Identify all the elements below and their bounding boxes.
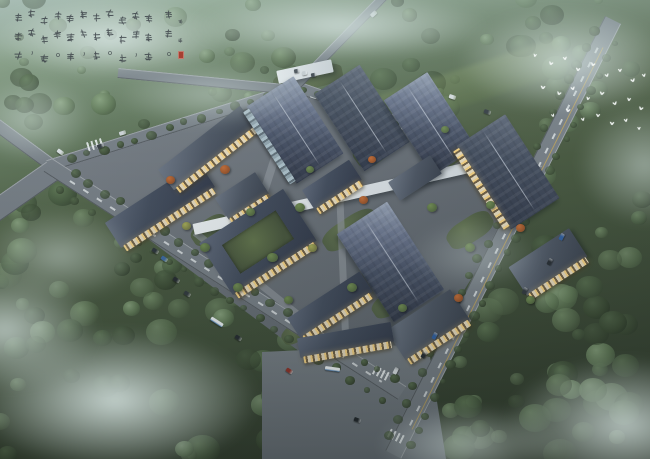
street-tree — [552, 153, 560, 160]
bird-icon: v — [562, 55, 567, 61]
calligraphy-character — [40, 31, 49, 49]
courtyard-tree — [427, 203, 437, 212]
calligraphy-character — [40, 50, 49, 68]
calligraphy-column — [40, 12, 49, 68]
forest-tree — [594, 0, 604, 4]
street-tree — [440, 379, 446, 385]
bird-icon: v — [575, 66, 580, 72]
bird-icon: v — [623, 117, 628, 123]
bird-icon: v — [599, 90, 605, 97]
street-tree — [485, 281, 495, 290]
street-tree — [146, 131, 156, 140]
street-tree — [166, 124, 174, 132]
forest-tree — [443, 434, 475, 459]
street-tree — [570, 122, 577, 128]
forest-tree — [24, 114, 43, 130]
street-tree — [71, 169, 81, 178]
calligraphy-character — [164, 25, 173, 43]
forest-tree — [586, 343, 614, 367]
street-tree — [402, 399, 412, 408]
calligraphy-character — [118, 50, 127, 68]
street-tree — [484, 240, 493, 248]
calligraphy-character — [144, 48, 153, 66]
calligraphy-column — [144, 10, 153, 66]
forest-tree — [546, 374, 572, 396]
forest-tree — [57, 319, 83, 341]
forest-tree — [552, 308, 579, 331]
bird-icon: v — [641, 72, 646, 78]
forest-tree — [542, 398, 571, 422]
calligraphy-character — [40, 12, 49, 30]
courtyard-tree — [486, 201, 495, 209]
courtyard-tree — [398, 304, 407, 312]
forest-tree — [63, 369, 79, 383]
bird-icon: v — [612, 100, 618, 107]
courtyard-tree — [182, 222, 191, 230]
street-tree — [265, 299, 275, 308]
calligraphy-character — [14, 9, 23, 27]
street-tree — [216, 109, 222, 115]
aerial-rendering: vvvvvvvvvvvvvvvvvvvvvvvv — [0, 0, 650, 459]
forest-tree — [471, 420, 490, 436]
street-tree — [415, 427, 422, 434]
forest-tree — [0, 446, 17, 459]
forest-tree — [149, 389, 180, 416]
forest-tree — [4, 337, 29, 358]
forest-tree — [598, 250, 622, 270]
street-tree — [226, 297, 234, 304]
calligraphy-character — [92, 47, 101, 65]
street-tree — [602, 54, 611, 62]
calligraphy-character — [131, 7, 140, 25]
accent-tree — [166, 176, 175, 184]
forest-tree — [225, 29, 239, 41]
street-tree — [586, 86, 596, 95]
calligraphy-character — [66, 29, 75, 47]
car — [56, 148, 64, 155]
bird-icon: v — [585, 95, 590, 101]
calligraphy-character — [81, 44, 87, 62]
forest-tree — [91, 93, 117, 115]
calligraphy-column — [164, 6, 173, 62]
street-tree — [564, 74, 574, 83]
street-tree — [582, 43, 591, 52]
forest-tree — [19, 74, 39, 91]
forest-tree — [15, 97, 34, 113]
forest-tree — [271, 47, 296, 68]
calligraphy-column — [79, 6, 88, 62]
street-tree — [197, 114, 206, 123]
forest-tree — [612, 354, 639, 377]
street-tree — [445, 360, 455, 369]
calligraphy-character — [144, 10, 153, 28]
courtyard-tree — [233, 283, 243, 292]
calligraphy-column — [92, 9, 101, 65]
street-tree — [511, 234, 521, 243]
calligraphy-column — [118, 12, 127, 68]
calligraphy-character — [118, 31, 127, 49]
courtyard-tree — [267, 253, 278, 263]
forest-tree — [632, 191, 650, 208]
street-tree — [210, 287, 220, 296]
street-tree — [361, 359, 368, 365]
courtyard-tree — [308, 244, 317, 252]
courtyard-tree — [465, 243, 475, 252]
forest-tree — [572, 329, 585, 340]
calligraphy-character — [53, 7, 62, 25]
calligraphy-character — [144, 29, 153, 47]
street-tree — [545, 166, 555, 175]
car — [234, 335, 242, 342]
street-tree — [117, 141, 125, 148]
forest-tree — [508, 395, 524, 409]
forest-tree — [572, 422, 596, 442]
forest-tree — [53, 97, 75, 115]
forest-tree — [454, 395, 482, 418]
calligraphy-character — [79, 6, 88, 24]
street-tree — [180, 118, 187, 124]
forest-tree — [510, 373, 524, 385]
calligraphy-column — [66, 10, 75, 66]
forest-tree — [230, 52, 255, 73]
bird-icon: v — [618, 68, 622, 74]
calligraphy-column — [105, 5, 114, 61]
courtyard-tree — [295, 203, 305, 212]
forest-tree — [595, 227, 609, 238]
calligraphy-character — [166, 44, 172, 62]
bird-icon: v — [570, 85, 576, 92]
forest-tree — [123, 301, 140, 316]
street-tree — [495, 265, 502, 272]
calligraphy-character — [131, 26, 140, 44]
calligraphy-character — [66, 10, 75, 28]
bird-icon: v — [609, 120, 614, 126]
forest-tree — [487, 288, 518, 315]
bird-icon: v — [626, 96, 631, 102]
car — [483, 109, 491, 115]
forest-tree — [110, 374, 130, 391]
street-tree — [463, 332, 470, 338]
street-tree — [589, 26, 600, 36]
forest-tree — [622, 61, 641, 77]
forest-tree — [402, 58, 419, 73]
street-tree — [56, 186, 64, 194]
forest-tree — [260, 66, 270, 74]
forest-tree — [49, 281, 69, 298]
calligraphy-character — [164, 6, 173, 24]
car — [183, 291, 191, 298]
street-tree — [83, 179, 93, 188]
calligraphy-character — [27, 24, 36, 42]
calligraphy-column — [131, 7, 140, 63]
accent-tree — [454, 294, 463, 302]
street-tree — [191, 249, 199, 256]
street-tree — [430, 393, 440, 402]
street-tree — [174, 238, 183, 246]
forest-tree — [421, 28, 440, 44]
street-tree — [345, 376, 355, 385]
forest-tree — [599, 311, 626, 334]
forest-tree — [609, 430, 625, 443]
street-tree — [88, 209, 96, 216]
street-tree — [181, 267, 187, 273]
street-tree — [194, 277, 205, 287]
bird-icon: v — [638, 105, 644, 112]
bird-icon: v — [540, 84, 546, 90]
street-tree — [454, 346, 461, 352]
signature-character — [178, 11, 183, 29]
bird-icon: v — [604, 72, 610, 79]
calligraphy-signature-column — [177, 11, 184, 59]
forest-tree — [114, 262, 130, 276]
forest-tree — [146, 319, 176, 345]
forest-tree — [391, 0, 404, 7]
forest-tree — [26, 336, 46, 353]
street-tree — [406, 441, 416, 450]
accent-tree — [220, 165, 230, 174]
forest-tree — [93, 330, 112, 346]
forest-tree — [515, 0, 537, 8]
forest-tree — [543, 439, 577, 459]
calligraphy-character — [92, 9, 101, 27]
calligraphy-column — [27, 5, 36, 61]
street-tree — [421, 413, 429, 420]
courtyard-tree — [284, 296, 293, 304]
courtyard-tree — [246, 208, 255, 216]
street-tree — [83, 150, 90, 156]
street-tree — [408, 382, 417, 390]
street-tree — [465, 272, 473, 279]
courtyard-tree — [200, 243, 210, 252]
calligraphy-character — [105, 24, 114, 42]
street-tree — [564, 136, 570, 142]
forest-tree — [491, 430, 507, 444]
bird-icon: v — [630, 77, 636, 84]
street-tree — [70, 197, 79, 205]
forest-tree — [7, 238, 37, 263]
calligraphy-column — [53, 7, 62, 63]
calligraphy-character — [27, 5, 36, 23]
calligraphy-character — [92, 28, 101, 46]
forest-tree — [0, 413, 10, 430]
red-seal — [178, 51, 184, 59]
calligraphy-character — [118, 12, 127, 30]
forest-tree — [402, 8, 418, 21]
bird-icon: v — [637, 126, 641, 132]
forest-tree — [576, 276, 602, 298]
forest-tree — [21, 204, 41, 221]
forest-tree — [525, 16, 541, 30]
calligraphy-character — [79, 25, 88, 43]
calligraphy-character — [14, 47, 23, 65]
forest-tree — [245, 0, 260, 11]
calligraphy-character — [29, 43, 35, 61]
forest-tree — [130, 278, 153, 298]
bird-icon: v — [596, 112, 601, 118]
forest-tree — [540, 5, 564, 25]
calligraphy-character — [55, 45, 61, 63]
forest-tree — [130, 253, 143, 264]
street-tree — [504, 249, 511, 256]
forest-tree — [0, 0, 10, 8]
courtyard-tree — [347, 283, 357, 292]
forest-tree — [261, 30, 275, 42]
street-tree — [479, 300, 486, 306]
street-tree — [418, 368, 427, 376]
forest-tree — [631, 211, 647, 225]
calligraphy-character — [133, 45, 139, 63]
calligraphy-inscription — [14, 4, 184, 68]
forest-tree — [199, 49, 215, 63]
signature-character — [178, 30, 183, 48]
street-tree — [390, 374, 399, 383]
forest-tree — [10, 378, 26, 392]
calligraphy-character — [105, 5, 114, 23]
calligraphy-column — [14, 9, 23, 65]
calligraphy-character — [66, 48, 75, 66]
accent-tree — [516, 224, 525, 232]
courtyard-tree — [526, 296, 535, 304]
calligraphy-character — [53, 26, 62, 44]
calligraphy-character — [14, 28, 23, 46]
forest-tree — [112, 326, 135, 346]
forest-tree — [609, 400, 639, 425]
forest-tree — [168, 299, 190, 317]
street-tree — [612, 41, 618, 47]
forest-tree — [477, 322, 500, 342]
accent-tree — [359, 196, 368, 204]
forest-tree — [16, 298, 30, 310]
forest-tree — [480, 34, 493, 45]
street-tree — [596, 73, 603, 79]
calligraphy-character — [107, 43, 113, 61]
